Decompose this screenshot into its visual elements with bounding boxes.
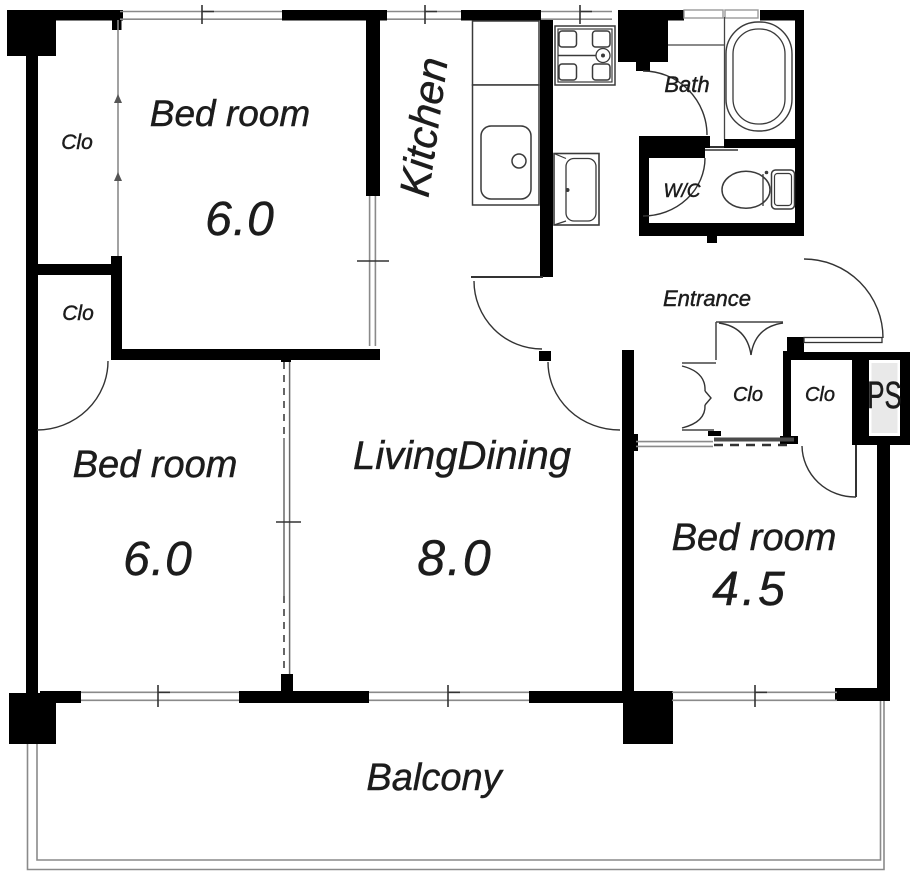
svg-text:Entrance: Entrance xyxy=(663,286,751,311)
svg-text:Clo: Clo xyxy=(805,384,835,406)
svg-text:4.5: 4.5 xyxy=(712,563,788,616)
svg-text:Clo: Clo xyxy=(61,131,93,154)
svg-text:Balcony: Balcony xyxy=(366,757,503,799)
svg-text:Bed room: Bed room xyxy=(73,444,238,486)
svg-text:LivingDining: LivingDining xyxy=(353,434,571,478)
svg-text:PS: PS xyxy=(867,374,901,416)
svg-text:W/C: W/C xyxy=(664,181,701,202)
svg-text:6.0: 6.0 xyxy=(205,193,275,246)
svg-text:Bed room: Bed room xyxy=(672,517,837,559)
svg-text:Clo: Clo xyxy=(733,384,763,406)
svg-text:6.0: 6.0 xyxy=(123,533,193,586)
svg-text:Clo: Clo xyxy=(62,302,94,325)
svg-text:Bed room: Bed room xyxy=(150,93,310,134)
svg-text:8.0: 8.0 xyxy=(417,530,493,586)
svg-text:Bath: Bath xyxy=(664,72,709,97)
